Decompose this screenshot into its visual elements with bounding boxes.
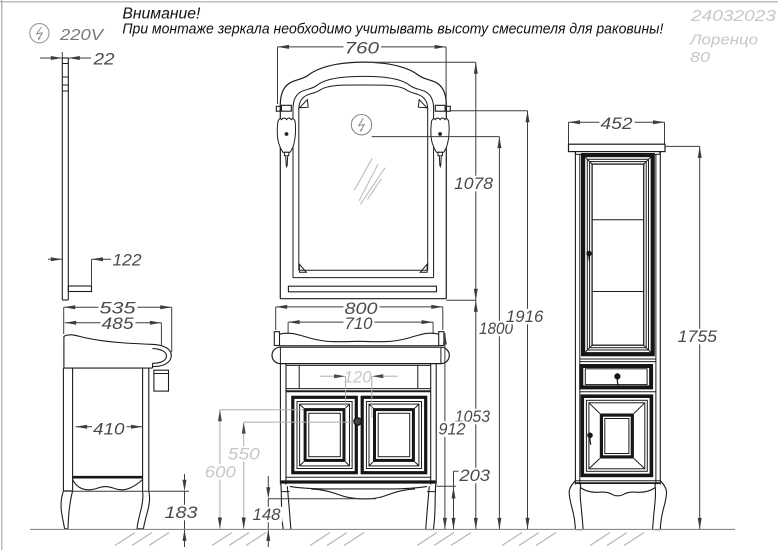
svg-text:122: 122 <box>113 252 142 270</box>
svg-text:220V: 220V <box>59 27 105 44</box>
svg-text:203: 203 <box>458 467 491 485</box>
svg-text:1916: 1916 <box>506 308 544 326</box>
svg-text:80: 80 <box>690 49 711 66</box>
svg-text:410: 410 <box>93 421 125 439</box>
svg-text:24032023: 24032023 <box>690 8 776 25</box>
svg-text:1078: 1078 <box>454 175 494 193</box>
svg-text:183: 183 <box>165 504 199 522</box>
svg-text:22: 22 <box>92 51 114 69</box>
svg-text:1755: 1755 <box>678 328 718 346</box>
svg-text:485: 485 <box>102 315 135 333</box>
svg-text:760: 760 <box>345 40 381 58</box>
svg-text:При монтаже зеркала необходимо: При монтаже зеркала необходимо учитывать… <box>122 21 664 38</box>
svg-text:912: 912 <box>439 421 466 439</box>
svg-text:600: 600 <box>205 463 237 481</box>
svg-text:452: 452 <box>601 115 633 133</box>
svg-text:148: 148 <box>253 506 282 524</box>
svg-text:Лоренцо: Лоренцо <box>689 32 758 49</box>
svg-text:120: 120 <box>344 368 373 386</box>
svg-text:550: 550 <box>228 445 261 463</box>
svg-text:710: 710 <box>345 315 374 333</box>
